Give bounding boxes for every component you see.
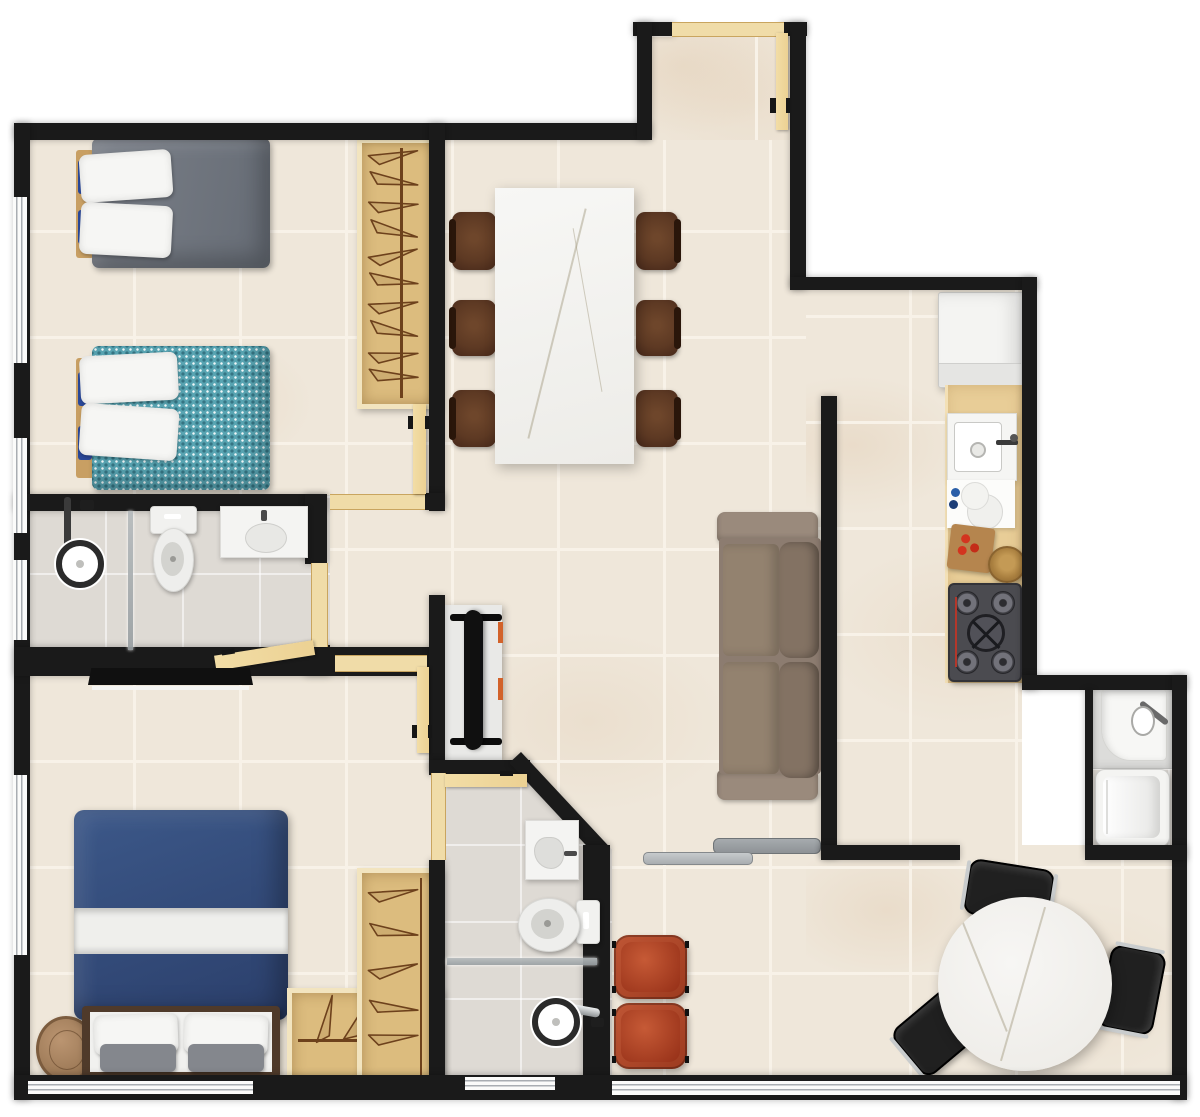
dish-rack [947, 480, 1015, 528]
wall [305, 494, 327, 564]
cooktop-trim [955, 597, 957, 667]
armchair [614, 1003, 687, 1069]
dining-chair [452, 390, 496, 447]
sofa-seat-cushion [723, 662, 779, 774]
bowl [988, 546, 1026, 583]
tomato [957, 545, 967, 555]
clothes-hanger-icon [365, 170, 421, 192]
console-handle [498, 622, 503, 643]
window [13, 560, 27, 640]
shower-glass [447, 958, 597, 965]
cup-blue [949, 500, 958, 509]
tomato [961, 534, 971, 544]
round-dining-table [938, 897, 1112, 1071]
wall-sofa-back [821, 396, 837, 858]
clothes-hanger-icon [365, 218, 421, 245]
single-bed-teal [76, 344, 270, 492]
doorway-bedroom-1 [330, 494, 425, 510]
vanity-sink [220, 506, 308, 558]
wall [429, 595, 445, 773]
pillow [78, 149, 173, 203]
console-handle [498, 678, 503, 700]
wall [425, 493, 445, 510]
clothes-hanger-icon [365, 957, 421, 984]
clothes-hanger-icon [365, 242, 421, 270]
toilet [518, 898, 598, 950]
single-bed-gray [76, 136, 270, 270]
shower-head [56, 540, 104, 588]
sofa [717, 512, 822, 800]
clothes-hanger-icon [365, 271, 420, 291]
door-bedroom-2 [417, 667, 429, 753]
wall [429, 860, 445, 1078]
door-bathroom-2 [445, 774, 527, 787]
clothes-hanger-icon [365, 144, 421, 169]
wall [14, 123, 651, 140]
kitchen-sink [947, 413, 1017, 481]
shower-head [532, 998, 580, 1046]
clothes-hanger-icon [315, 992, 340, 1048]
tomato [970, 543, 980, 553]
clothes-hanger-icon [365, 346, 420, 366]
hanger-rail [362, 143, 435, 404]
pillow [78, 403, 179, 462]
door-bedroom-1 [413, 404, 426, 494]
doorway-bedroom-2 [335, 655, 427, 672]
sideboard-shelf [643, 852, 753, 865]
wall [583, 845, 610, 1085]
wall [637, 22, 652, 140]
pillow [79, 202, 174, 259]
fridge-door-edge [939, 363, 1021, 386]
shower-valve [591, 1018, 604, 1027]
pillow-gray [188, 1044, 264, 1072]
clothes-hanger-icon [365, 295, 421, 317]
wall [1022, 675, 1187, 690]
dining-table-marble [495, 188, 634, 464]
dining-chair [452, 212, 496, 270]
window [465, 1077, 555, 1090]
entry-region [652, 36, 790, 140]
clothes-hanger-icon [365, 882, 421, 905]
clothes-hanger-icon [366, 368, 421, 385]
wall [1085, 845, 1187, 860]
wall [429, 123, 445, 511]
vanity-sink [525, 820, 579, 880]
wall [1085, 690, 1093, 848]
clothes-hanger-icon [365, 1028, 420, 1048]
bed-blanket-band [74, 908, 288, 954]
wall [1022, 277, 1037, 690]
floor-plan [0, 0, 1200, 1117]
window [13, 438, 27, 533]
window [13, 197, 27, 363]
entry-door [776, 33, 788, 130]
doorway-bathroom-2 [431, 773, 446, 860]
clothes-hanger-icon [365, 319, 421, 344]
sofa-seat-cushion [723, 544, 779, 656]
refrigerator [938, 292, 1024, 388]
tub-faucet-head [1131, 706, 1155, 736]
wardrobe-bedroom-1 [357, 138, 440, 409]
laundry-tub [1088, 683, 1174, 769]
vanity-faucet [261, 510, 267, 521]
wall [790, 277, 1037, 290]
doorway-bathroom-1 [311, 563, 328, 647]
dining-chair [452, 300, 496, 356]
pillow [79, 351, 179, 404]
armchair [614, 935, 687, 999]
dining-chair [636, 212, 678, 270]
window [28, 1081, 253, 1094]
window [612, 1081, 1180, 1095]
cup-blue [951, 488, 960, 497]
wall [790, 22, 806, 290]
hanger-rail [362, 873, 438, 1083]
sofa-back-cushion [779, 662, 819, 778]
tv-screen-bedroom-2 [88, 668, 253, 685]
dining-chair [636, 300, 678, 356]
vanity-faucet [564, 851, 577, 856]
wall [1172, 675, 1187, 1100]
entry-doorway [672, 22, 784, 37]
shower-pipe [64, 497, 71, 547]
shower-valve [80, 500, 94, 510]
shower-glass [128, 511, 133, 650]
window [13, 775, 27, 955]
sofa-back-cushion [779, 542, 819, 658]
cooktop [948, 583, 1022, 682]
tv-shelf [92, 686, 249, 690]
double-bed-navy [74, 810, 288, 1078]
pillow-gray [100, 1044, 176, 1072]
clothes-hanger-icon [365, 922, 420, 942]
dining-chair [636, 390, 678, 447]
tv-screen-living [464, 610, 483, 750]
toilet [150, 506, 195, 592]
clothes-hanger-icon [366, 197, 421, 215]
hall-region [330, 511, 429, 650]
clothes-hanger-icon [365, 999, 420, 1018]
wall [821, 845, 960, 860]
washing-machine [1095, 769, 1170, 847]
